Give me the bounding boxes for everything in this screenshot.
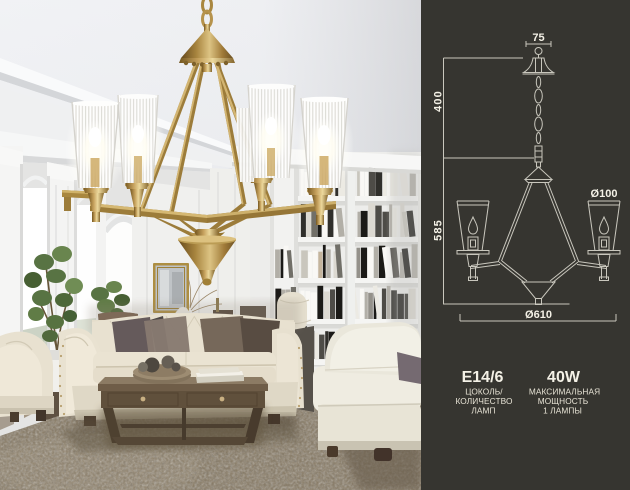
svg-text:МОЩНОСТЬ: МОЩНОСТЬ: [538, 396, 589, 406]
svg-text:585: 585: [433, 219, 445, 241]
svg-text:1 ЛАМПЫ: 1 ЛАМПЫ: [543, 406, 582, 416]
svg-text:Ø100: Ø100: [591, 188, 618, 200]
svg-text:400: 400: [433, 90, 445, 112]
svg-text:МАКСИМАЛЬНАЯ: МАКСИМАЛЬНАЯ: [529, 387, 600, 397]
svg-text:E14/6: E14/6: [462, 369, 504, 386]
svg-text:75: 75: [532, 32, 544, 44]
svg-text:ЦОКОЛЬ/: ЦОКОЛЬ/: [465, 387, 503, 397]
svg-text:КОЛИЧЕСТВО: КОЛИЧЕСТВО: [455, 396, 513, 406]
svg-text:ЛАМП: ЛАМП: [471, 406, 495, 416]
svg-text:Ø610: Ø610: [525, 309, 552, 321]
svg-text:40W: 40W: [547, 369, 581, 386]
